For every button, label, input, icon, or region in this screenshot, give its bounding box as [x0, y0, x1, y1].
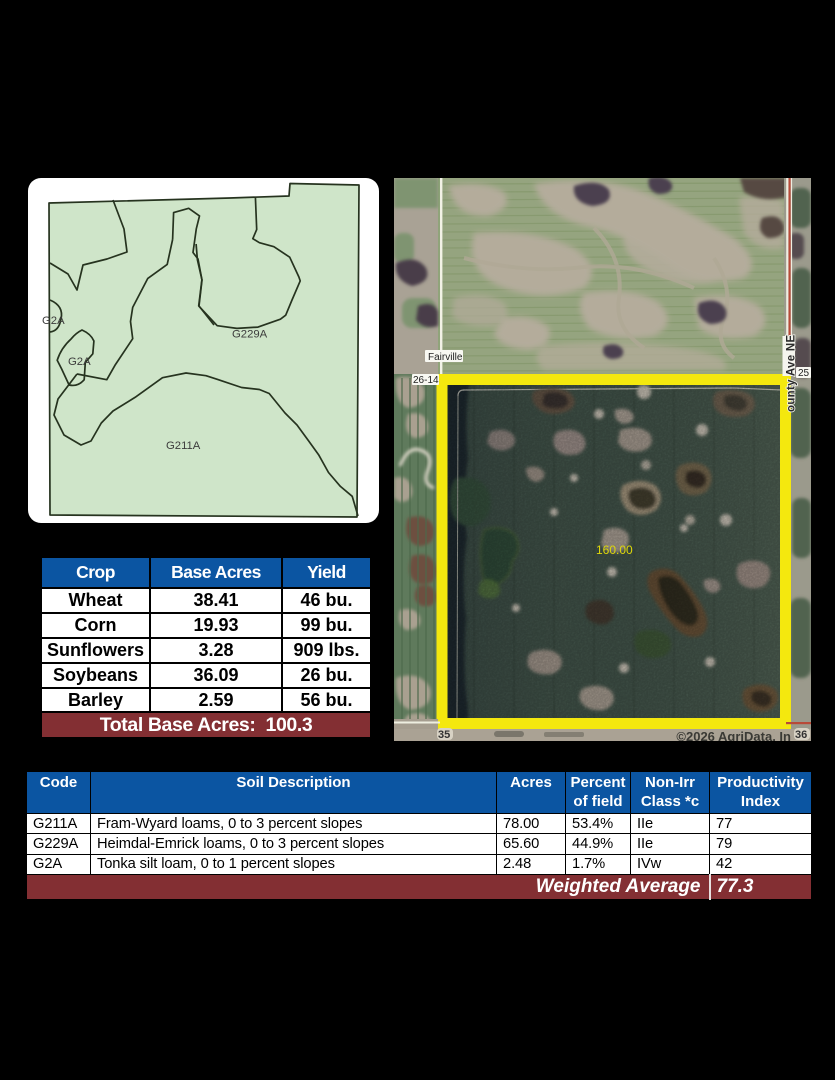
svg-text:36: 36 [795, 729, 807, 741]
svg-text:160.00: 160.00 [596, 543, 633, 557]
svg-text:G2A: G2A [68, 356, 91, 368]
svg-text:26-14: 26-14 [413, 375, 439, 386]
svg-text:ounty Ave NE: ounty Ave NE [786, 334, 798, 412]
svg-text:G2A: G2A [42, 315, 65, 327]
svg-text:25: 25 [798, 368, 810, 379]
svg-text:35: 35 [438, 729, 450, 741]
svg-text:G211A: G211A [166, 440, 201, 452]
svg-text:©2026 AgriData, In: ©2026 AgriData, In [676, 729, 791, 741]
svg-text:G229A: G229A [232, 329, 268, 341]
svg-text:Fairville: Fairville [428, 352, 463, 363]
